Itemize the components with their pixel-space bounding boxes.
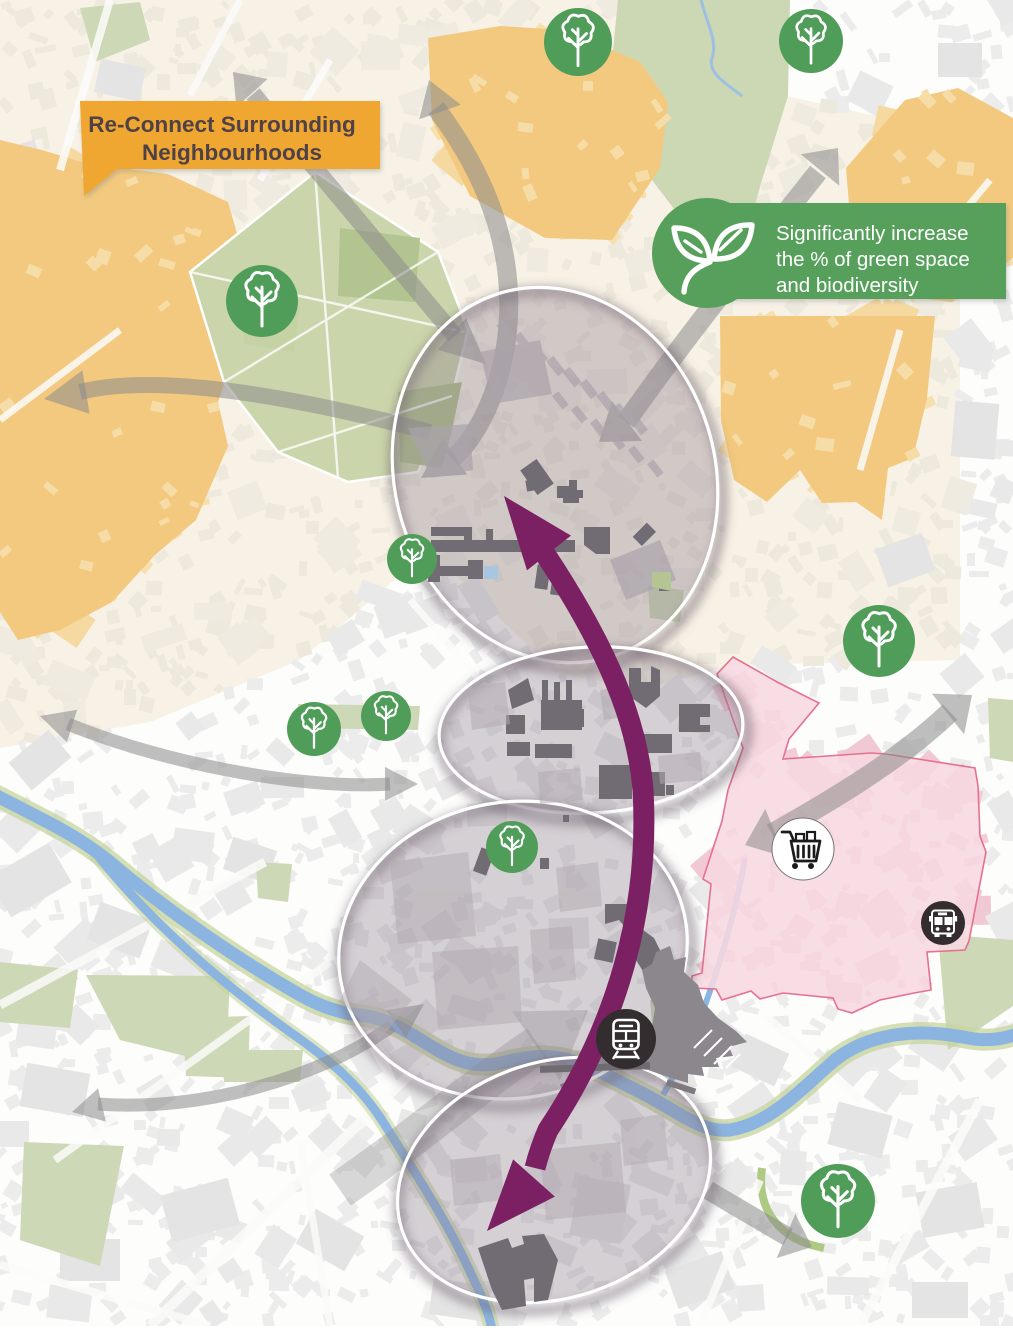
svg-text:the % of green space: the % of green space <box>776 248 970 271</box>
svg-text:Neighbourhoods: Neighbourhoods <box>142 140 322 165</box>
svg-text:Significantly increase: Significantly increase <box>776 222 969 245</box>
svg-text:Re-Connect Surrounding: Re-Connect Surrounding <box>88 112 355 137</box>
svg-text:and biodiversity: and biodiversity <box>776 274 919 297</box>
